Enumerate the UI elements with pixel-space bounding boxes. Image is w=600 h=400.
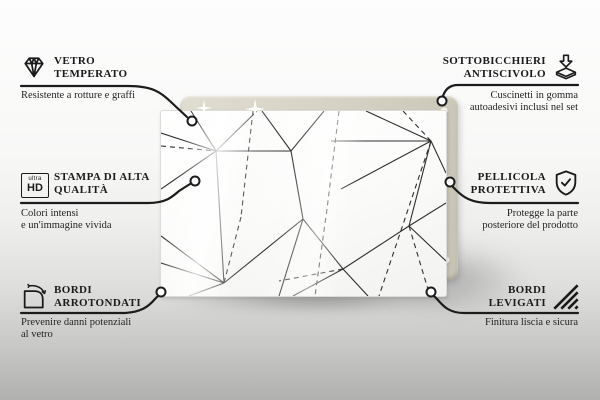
callout-rounded-edges-desc: Prevenire danni potenziali al vetro <box>21 317 131 341</box>
callout-anti-slip-desc: Cuscinetti in gomma autoadesivi inclusi … <box>398 90 578 114</box>
diamond-icon <box>20 53 48 81</box>
desc-line: e un'immagine vivida <box>21 220 112 232</box>
desc-line: al vetro <box>21 329 131 341</box>
shield-check-icon <box>552 169 580 197</box>
title-line: PROTETTIVA <box>406 184 546 197</box>
ultra-hd-badge-icon: ultra HD <box>21 173 49 198</box>
rounded-corner-icon <box>20 283 48 311</box>
title-line: TEMPERATO <box>54 68 127 81</box>
hatched-edge-icon <box>552 283 580 311</box>
callout-tempered-glass-desc: Resistente a rotture e graffi <box>21 90 135 102</box>
title-line: BORDI <box>54 284 141 297</box>
callout-anti-slip-title: SOTTOBICCHIERI ANTISCIVOLO <box>406 55 546 81</box>
callout-protective-film-title: PELLICOLA PROTETTIVA <box>406 171 546 197</box>
desc-line: Protegge la parte <box>398 208 578 220</box>
title-line: BORDI <box>406 284 546 297</box>
title-line: PELLICOLA <box>406 171 546 184</box>
desc-line: Prevenire danni potenziali <box>21 317 131 329</box>
desc-line: posteriore del prodotto <box>398 220 578 232</box>
title-line: QUALITÀ <box>54 184 150 197</box>
product-infographic: VETRO TEMPERATO Resistente a rotture e g… <box>0 0 600 400</box>
callout-rounded-edges-title: BORDI ARROTONDATI <box>54 284 141 310</box>
desc-line: Colori intensi <box>21 208 112 220</box>
callout-protective-film-desc: Protegge la parte posteriore del prodott… <box>398 208 578 232</box>
title-line: ANTISCIVOLO <box>406 68 546 81</box>
desc-line: Resistente a rotture e graffi <box>21 90 135 102</box>
title-line: SOTTOBICCHIERI <box>406 55 546 68</box>
callout-polished-edges-desc: Finitura liscia e sicura <box>398 317 578 329</box>
connector-dot <box>191 177 200 186</box>
callout-polished-edges-title: BORDI LEVIGATI <box>406 284 546 310</box>
badge-text: HD <box>22 183 48 194</box>
title-line: VETRO <box>54 55 127 68</box>
desc-line: autoadesivi inclusi nel set <box>398 102 578 114</box>
callout-print-quality-desc: Colori intensi e un'immagine vivida <box>21 208 112 232</box>
title-line: ARROTONDATI <box>54 297 141 310</box>
connector-dot <box>188 117 197 126</box>
callout-print-quality-title: STAMPA DI ALTA QUALITÀ <box>54 171 150 197</box>
connector-dot <box>157 288 166 297</box>
callout-tempered-glass-title: VETRO TEMPERATO <box>54 55 127 81</box>
title-line: STAMPA DI ALTA <box>54 171 150 184</box>
adhesive-pad-icon <box>552 53 580 81</box>
desc-line: Finitura liscia e sicura <box>398 317 578 329</box>
title-line: LEVIGATI <box>406 297 546 310</box>
desc-line: Cuscinetti in gomma <box>398 90 578 102</box>
